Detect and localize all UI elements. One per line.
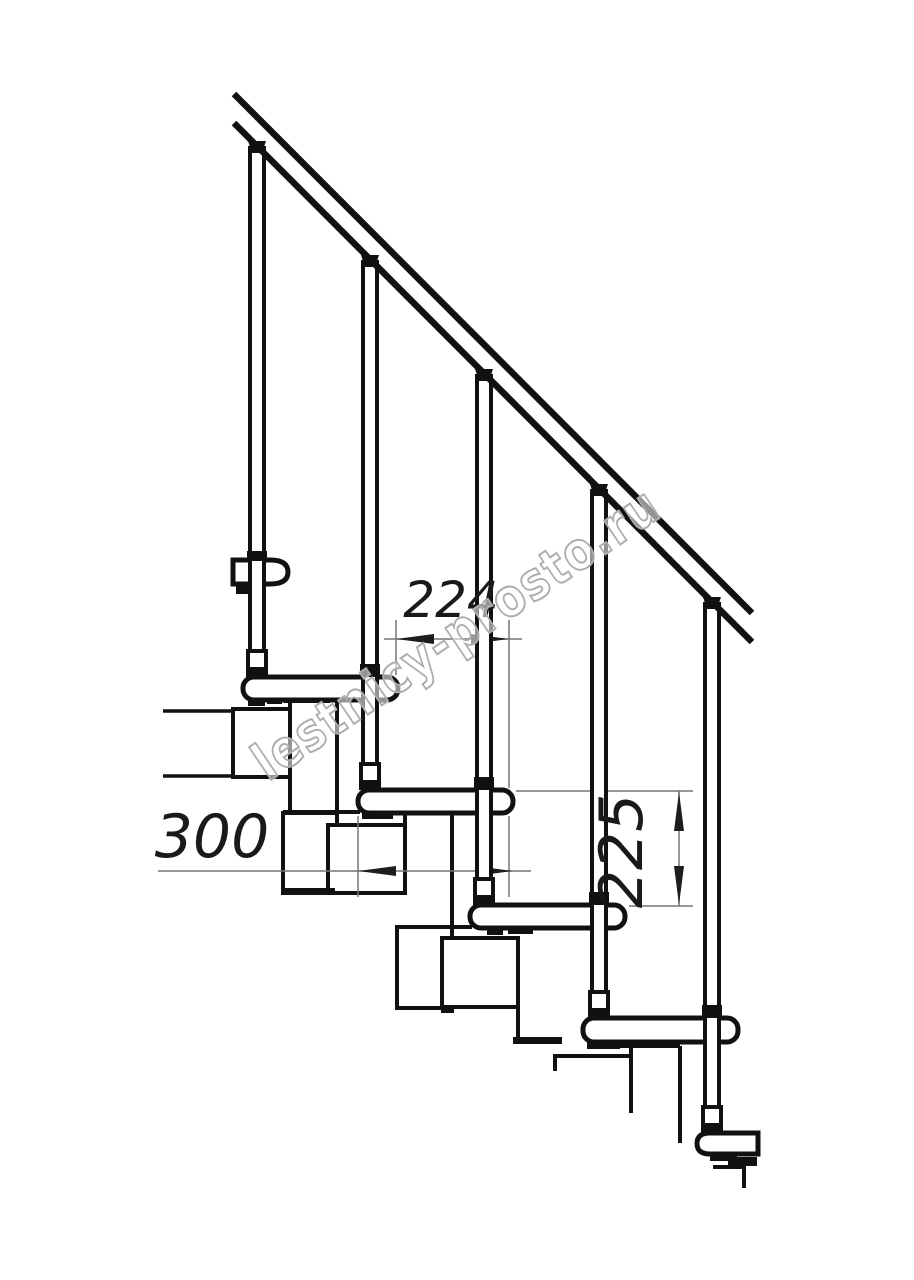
attachment-tab: [728, 1157, 757, 1166]
arrow-down: [674, 866, 684, 905]
attachment-tab: [285, 888, 335, 895]
baluster-post: [705, 604, 719, 1109]
arrow-up: [674, 792, 684, 831]
pass-through-clamp: [247, 551, 267, 561]
foot-base: [701, 1125, 723, 1133]
foot-base: [246, 669, 268, 677]
module-box: [328, 825, 405, 893]
foot-sleeve: [703, 1107, 721, 1125]
foot-sleeve: [248, 651, 266, 669]
tread-5-partial: [697, 1133, 758, 1154]
landing-floor-lines: [163, 711, 236, 776]
dimension-value-step-rise: 225: [587, 794, 657, 909]
staircase-drawing-canvas: 224 300 225 lestnicy-prosto.ru: [0, 0, 914, 1280]
foot-sleeve: [361, 764, 379, 782]
module-box: [442, 938, 518, 1007]
attachment-tab: [513, 1037, 562, 1044]
foot-sleeve: [475, 879, 493, 897]
foot-base: [473, 897, 495, 905]
baluster-5: [701, 597, 723, 1133]
foot-base: [359, 782, 381, 790]
dimension-value-tread-length: 300: [155, 802, 270, 872]
module-partial-outline: [713, 1167, 744, 1188]
foot-sleeve: [590, 992, 608, 1010]
pass-through-clamp: [474, 777, 494, 790]
attachment-tab: [441, 1005, 454, 1013]
baluster-post: [250, 148, 264, 653]
foot-base: [588, 1010, 610, 1018]
pass-through-clamp: [702, 1005, 722, 1018]
baluster-1: [246, 141, 268, 677]
staircase-technical-drawing: 224 300 225 lestnicy-prosto.ru: [0, 0, 914, 1280]
module-partial-outline: [555, 1056, 631, 1071]
